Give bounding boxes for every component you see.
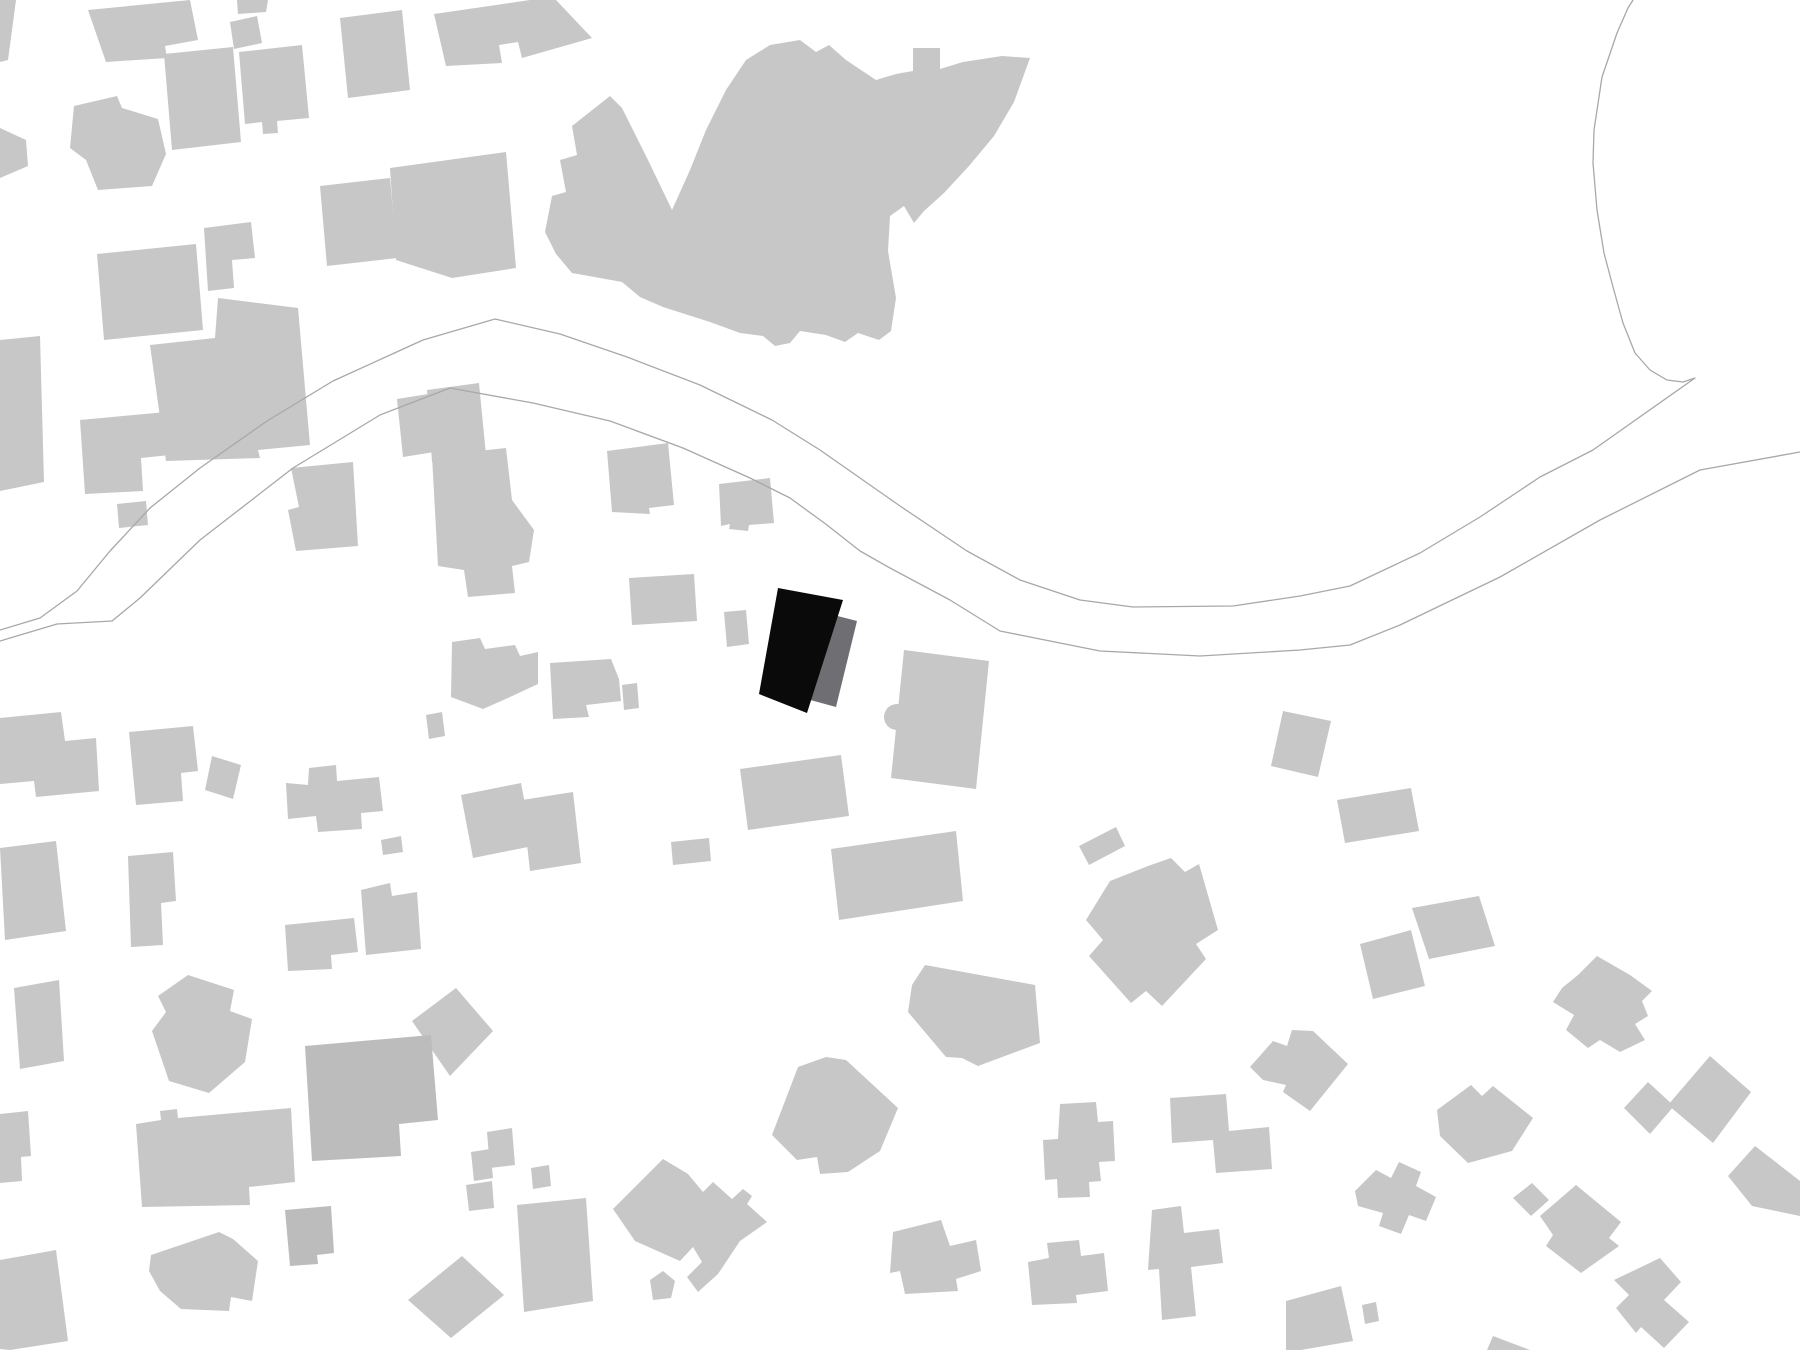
building-footprint-e8 xyxy=(128,852,176,947)
building-footprint-h7-t xyxy=(1148,1206,1223,1320)
building-footprint-j3 xyxy=(622,683,639,710)
building-footprint-e4 xyxy=(286,765,383,832)
building-footprint-i8-pair xyxy=(1728,1146,1800,1216)
building-footprint-g1c xyxy=(531,1165,551,1189)
building-footprint-b15 xyxy=(0,336,44,491)
building-footprint-h2-cross xyxy=(1043,1102,1115,1198)
building-footprint-i3-plus xyxy=(1553,956,1652,1052)
building-footprint-h5-stepped xyxy=(890,1220,981,1294)
building-footprint-c7 xyxy=(891,650,989,789)
building-footprint-i9a xyxy=(1513,1183,1549,1216)
site-plan xyxy=(0,0,1800,1350)
building-footprint-i4-gable xyxy=(1437,1085,1533,1163)
building-footprint-j2 xyxy=(550,659,621,719)
building-footprint-e9 xyxy=(361,883,421,955)
building-footprint-c1 xyxy=(607,443,674,514)
building-footprint-b9 xyxy=(0,128,28,178)
building-footprint-f4-fan xyxy=(149,1232,258,1311)
building-footprint-b10 xyxy=(320,178,397,266)
building-footprint-b6 xyxy=(164,47,241,150)
building-footprint-edge-sliver-tl xyxy=(0,0,16,62)
building-footprint-j1 xyxy=(451,638,538,709)
building-footprint-e5 xyxy=(426,712,445,739)
building-footprint-i7-diamond xyxy=(1668,1056,1751,1143)
building-footprint-b3 xyxy=(237,0,268,14)
building-footprint-i10-cross xyxy=(1614,1258,1689,1348)
building-footprint-h3-z xyxy=(1170,1094,1272,1173)
building-footprint-h6-l xyxy=(1028,1240,1108,1305)
building-footprint-b5 xyxy=(434,0,592,66)
building-footprint-h1 xyxy=(908,965,1040,1066)
building-footprint-g5 xyxy=(650,1271,675,1300)
building-footprint-d1 xyxy=(1271,711,1331,777)
building-footprint-b12 xyxy=(97,244,203,340)
building-footprint-f2-long xyxy=(136,1108,295,1207)
building-footprint-church-complex xyxy=(545,40,1030,346)
building-footprint-g1b xyxy=(471,1149,493,1181)
building-footprint-b16 xyxy=(80,412,170,494)
building-footprint-i5-cross xyxy=(1355,1162,1436,1234)
building-footprint-g3 xyxy=(408,1256,504,1338)
site-plan-svg xyxy=(0,0,1800,1350)
building-footprint-e12-house xyxy=(152,975,252,1093)
building-footprint-b2 xyxy=(230,16,262,49)
building-footprint-e6 xyxy=(381,836,403,855)
building-footprint-e10 xyxy=(285,918,358,971)
building-footprint-c3 xyxy=(629,574,697,625)
building-footprint-j4a xyxy=(461,783,533,858)
building-footprint-g2-tall xyxy=(517,1198,593,1312)
building-footprint-b4 xyxy=(340,10,410,98)
building-footprint-f5-small xyxy=(285,1206,334,1266)
building-footprint-e11 xyxy=(14,980,64,1069)
building-footprint-j6 xyxy=(740,755,849,830)
building-footprint-f3-large xyxy=(305,1035,438,1161)
building-footprint-e3 xyxy=(205,756,241,799)
building-footprint-c4 xyxy=(724,610,749,647)
building-footprint-i2b xyxy=(1360,930,1425,999)
building-footprint-j10-house xyxy=(1086,858,1218,1006)
building-footprint-g6-pair xyxy=(772,1057,898,1174)
building-footprint-i13-wedge xyxy=(1487,1336,1530,1350)
building-footprint-j5 xyxy=(671,838,711,865)
building-footprint-e2 xyxy=(129,726,198,805)
building-footprint-g4-complex xyxy=(613,1159,767,1292)
building-footprint-b21 xyxy=(432,448,534,597)
building-footprint-f1 xyxy=(0,1111,31,1183)
building-footprint-b18 xyxy=(288,462,358,551)
building-footprint-b14 xyxy=(204,222,255,291)
building-footprint-b8 xyxy=(70,96,166,190)
building-footprint-j7 xyxy=(831,831,963,920)
building-footprint-f6 xyxy=(0,1250,68,1350)
building-footprint-b11 xyxy=(390,152,516,278)
building-footprint-i6-diamond xyxy=(1624,1082,1674,1134)
building-footprint-h4-diamond xyxy=(1250,1030,1348,1111)
building-footprint-g1d xyxy=(466,1181,494,1211)
building-footprint-e1 xyxy=(0,712,99,797)
building-footprint-h8 xyxy=(1286,1286,1353,1350)
building-footprint-e7 xyxy=(0,841,66,940)
building-footprint-i9b-house xyxy=(1540,1185,1621,1273)
building-footprint-i2a xyxy=(1412,896,1495,959)
building-footprint-d2 xyxy=(1337,788,1419,843)
building-footprint-i11 xyxy=(1362,1302,1379,1324)
building-footprint-j9-bar xyxy=(1079,827,1125,865)
building-footprint-b7 xyxy=(239,45,309,134)
building-footprint-j4b xyxy=(522,792,581,871)
